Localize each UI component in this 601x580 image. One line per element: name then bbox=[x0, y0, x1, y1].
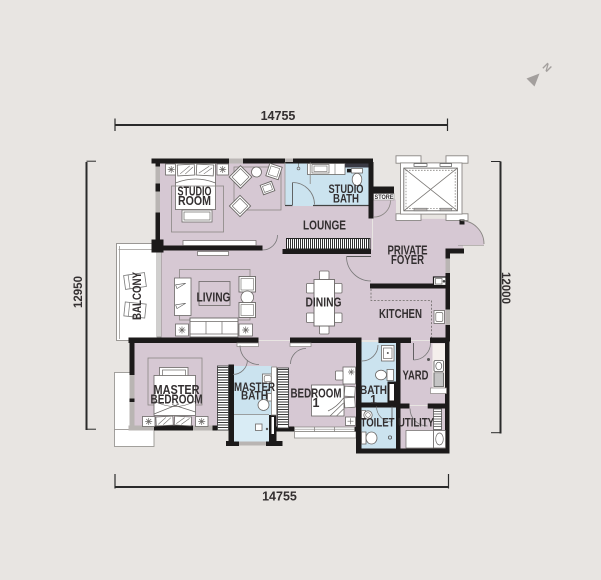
svg-text:FOYER: FOYER bbox=[391, 253, 424, 267]
svg-text:BALCONY: BALCONY bbox=[130, 272, 144, 320]
svg-text:DINING: DINING bbox=[306, 295, 342, 310]
svg-text:BEDROOM: BEDROOM bbox=[151, 393, 203, 407]
svg-text:ROOM: ROOM bbox=[178, 194, 211, 208]
svg-text:STORE: STORE bbox=[375, 194, 395, 201]
svg-text:UTILITY: UTILITY bbox=[398, 416, 434, 430]
svg-text:YARD: YARD bbox=[403, 368, 429, 383]
svg-text:12000: 12000 bbox=[499, 272, 511, 304]
svg-text:BATH: BATH bbox=[241, 389, 268, 403]
svg-text:LOUNGE: LOUNGE bbox=[303, 218, 346, 233]
svg-text:14755: 14755 bbox=[262, 490, 297, 504]
svg-text:BATH: BATH bbox=[333, 192, 359, 206]
svg-text:TOILET: TOILET bbox=[361, 416, 396, 430]
svg-text:1: 1 bbox=[370, 393, 377, 407]
svg-text:LIVING: LIVING bbox=[197, 290, 231, 305]
svg-text:12950: 12950 bbox=[73, 276, 85, 308]
svg-text:14755: 14755 bbox=[261, 109, 296, 123]
svg-text:KITCHEN: KITCHEN bbox=[379, 306, 422, 321]
svg-text:1: 1 bbox=[313, 396, 320, 410]
